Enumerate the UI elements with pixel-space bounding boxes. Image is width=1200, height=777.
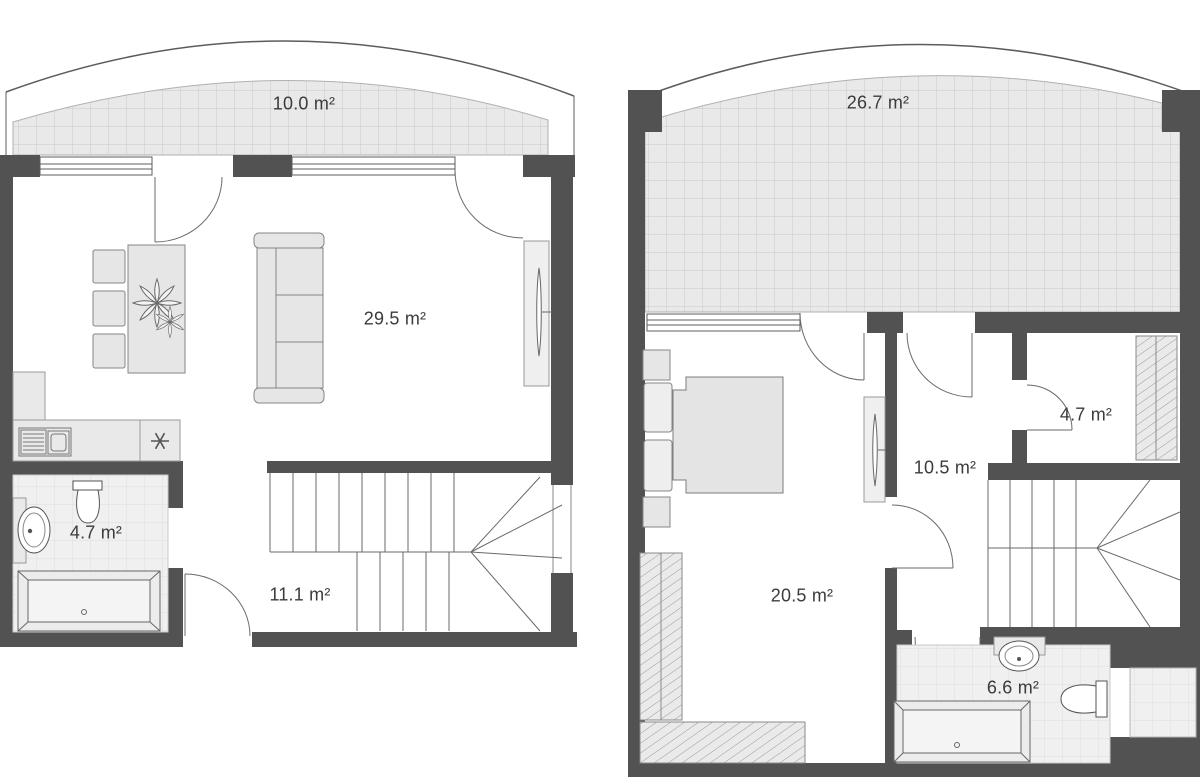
room-label-floor2-hallway: 10.5 m² — [914, 458, 976, 479]
terrace-hall-door — [907, 333, 972, 397]
bathroom-niche — [1130, 668, 1196, 737]
floor1-tv — [524, 241, 552, 386]
room-label-floor2-bathroom: 6.6 m² — [987, 678, 1039, 699]
wardrobe — [640, 722, 805, 763]
bathtub — [894, 701, 1030, 762]
chair — [93, 250, 125, 283]
window — [40, 157, 152, 175]
window — [292, 157, 455, 175]
stair-window — [553, 485, 571, 573]
floor1-dining-set — [93, 245, 185, 373]
tv-screen — [537, 268, 542, 356]
terrace-door — [455, 170, 523, 238]
floor1-stairs — [270, 473, 562, 631]
floor2-closet-wardrobe — [1136, 336, 1177, 460]
floorplan-drawing — [0, 0, 1200, 777]
nightstand — [643, 497, 670, 527]
tv-screen — [873, 414, 878, 486]
room-label-floor2-closet: 4.7 m² — [1060, 405, 1112, 426]
room-label-floor1-terrace: 10.0 m² — [273, 94, 335, 115]
terrace-floor — [645, 76, 1180, 312]
nightstand — [643, 350, 670, 380]
window — [647, 314, 800, 331]
floor2-plan — [628, 44, 1200, 777]
kitchen-counter — [13, 372, 45, 420]
room-label-floor1-living: 29.5 m² — [364, 309, 426, 330]
terrace-floor — [13, 80, 548, 155]
chair — [93, 291, 125, 326]
floorplan-canvas: 10.0 m² 29.5 m² 4.7 m² 11.1 m² 26.7 m² 2… — [0, 0, 1200, 777]
floor1-plan — [0, 41, 577, 647]
floor2-terrace — [630, 44, 1196, 312]
floor2-windows — [647, 314, 800, 331]
entrance-door — [185, 574, 250, 636]
bathtub — [18, 571, 160, 631]
pillow — [644, 440, 672, 491]
pillow — [644, 383, 672, 432]
room-label-floor2-bedroom: 20.5 m² — [771, 586, 833, 607]
floor1-sofa — [254, 233, 324, 403]
chair — [93, 334, 125, 368]
room-label-floor1-bathroom: 4.7 m² — [70, 523, 122, 544]
terrace-bedroom-door — [800, 313, 864, 380]
room-label-floor2-terrace: 26.7 m² — [847, 93, 909, 114]
wardrobe — [640, 553, 682, 720]
floor2-bedroom-furniture — [640, 350, 886, 763]
floor1-bathroom — [13, 475, 168, 632]
bed — [673, 377, 783, 493]
bedroom-hall-door — [892, 505, 953, 568]
floor1-kitchen — [13, 372, 180, 461]
terrace-door — [155, 177, 222, 242]
room-label-floor1-hallway: 11.1 m² — [269, 585, 330, 606]
floor2-stairs — [988, 480, 1180, 627]
tv — [864, 397, 886, 502]
